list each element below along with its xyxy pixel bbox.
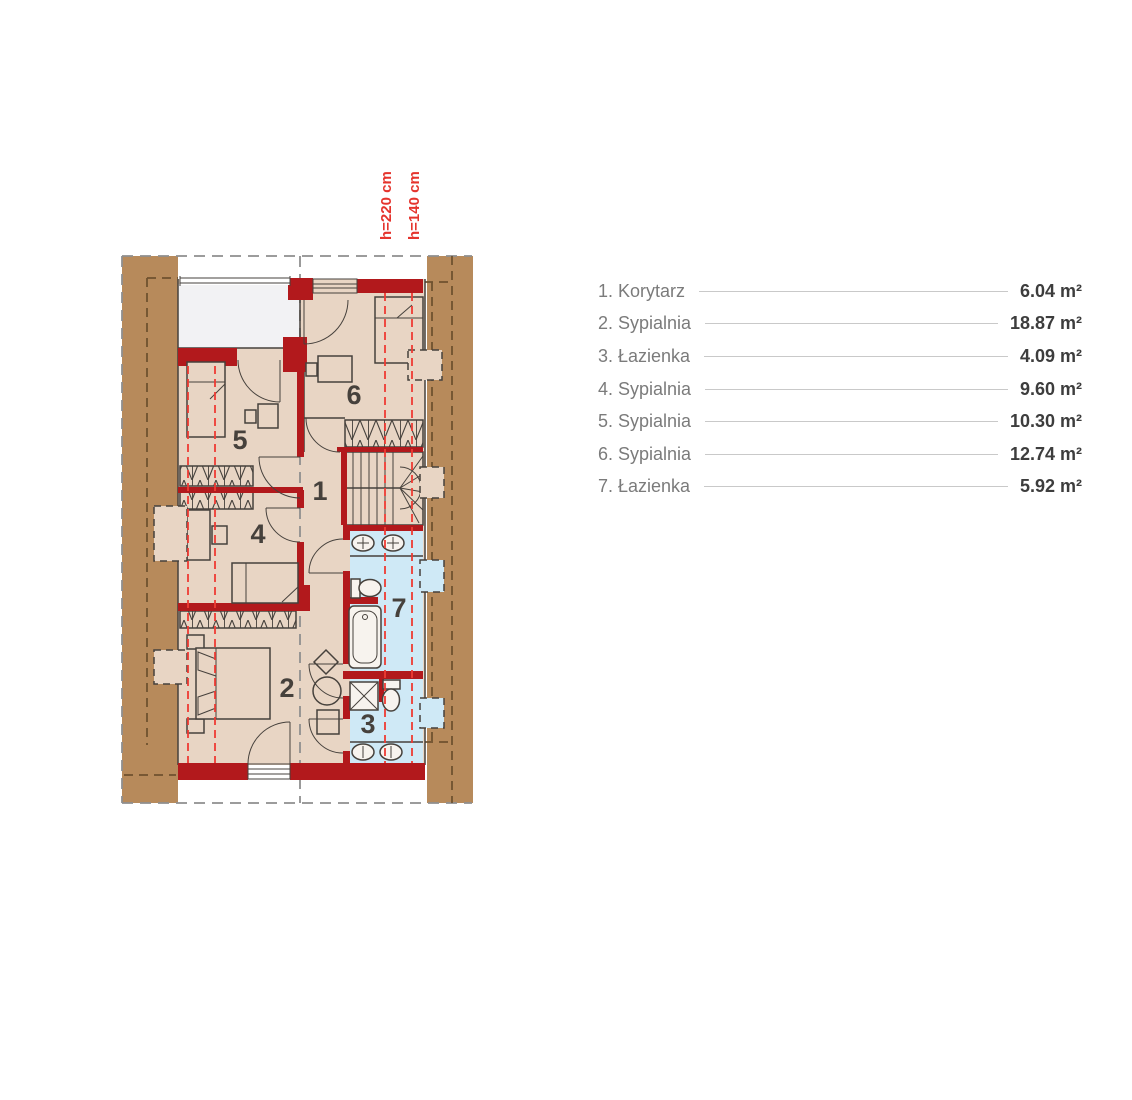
room-label-2: 2 (279, 673, 294, 703)
room-2-table-round (313, 677, 341, 705)
legend-leader-line (705, 323, 998, 324)
dormer-bath-3 (420, 698, 444, 728)
legend-label: 6. Sypialnia (598, 444, 691, 465)
height-label-220: h=220 cm (378, 171, 395, 240)
legend-leader-line (699, 291, 1008, 292)
room-5-chair (245, 410, 256, 423)
wardrobe-room-2 (180, 611, 296, 628)
void-top-window (180, 276, 290, 286)
legend-row-7: 7. Łazienka 5.92 m² (598, 471, 1082, 504)
room-2-balcony-door (248, 764, 290, 779)
room-label-3: 3 (360, 709, 375, 739)
room-legend: 1. Korytarz 6.04 m² 2. Sypialnia 18.87 m… (598, 275, 1082, 503)
room-6-desk (318, 356, 352, 382)
room-5-desk (258, 404, 278, 428)
legend-leader-line (705, 421, 998, 422)
wardrobe-room-4 (180, 492, 253, 509)
legend-area: 5.92 m² (1020, 476, 1082, 497)
legend-label: 3. Łazienka (598, 346, 690, 367)
room-2-pouf (317, 710, 339, 734)
room-label-6: 6 (346, 380, 361, 410)
room-4-desk (187, 510, 210, 560)
height-label-140: h=140 cm (406, 171, 423, 240)
legend-area: 9.60 m² (1020, 379, 1082, 400)
floor-plan-page: 1 2 3 4 5 6 7 h=220 cm h=140 cm 1. Koryt… (0, 0, 1132, 1100)
void-area (178, 284, 300, 348)
height-annotations: h=220 cm h=140 cm (378, 171, 423, 240)
legend-row-6: 6. Sypialnia 12.74 m² (598, 438, 1082, 471)
dormer-room-6 (408, 350, 442, 380)
legend-label: 7. Łazienka (598, 476, 690, 497)
legend-area: 4.09 m² (1020, 346, 1082, 367)
legend-leader-line (705, 454, 998, 455)
room-2-double-bed (196, 648, 270, 719)
legend-leader-line (705, 389, 1008, 390)
legend-row-1: 1. Korytarz 6.04 m² (598, 275, 1082, 308)
room-6-chair (306, 363, 317, 376)
legend-label: 1. Korytarz (598, 281, 685, 302)
room-4-bed (232, 563, 298, 603)
wardrobe-room-5 (180, 466, 253, 486)
dormer-stairs (420, 467, 444, 498)
floor-plan-drawing: 1 2 3 4 5 6 7 h=220 cm h=140 cm (0, 0, 560, 1100)
legend-row-2: 2. Sypialnia 18.87 m² (598, 308, 1082, 341)
legend-label: 2. Sypialnia (598, 313, 691, 334)
room-label-5: 5 (232, 425, 247, 455)
dormer-bath-7 (420, 560, 444, 592)
bath-7-toilet-bowl (359, 580, 381, 597)
legend-row-3: 3. Łazienka 4.09 m² (598, 340, 1082, 373)
legend-row-4: 4. Sypialnia 9.60 m² (598, 373, 1082, 406)
legend-area: 18.87 m² (1010, 313, 1082, 334)
dormer-room-4 (154, 506, 187, 561)
room-label-4: 4 (250, 519, 265, 549)
legend-label: 5. Sypialnia (598, 411, 691, 432)
room-5-bed (187, 362, 225, 437)
dormer-room-2 (154, 650, 187, 684)
legend-label: 4. Sypialnia (598, 379, 691, 400)
legend-row-5: 5. Sypialnia 10.30 m² (598, 405, 1082, 438)
legend-area: 10.30 m² (1010, 411, 1082, 432)
legend-leader-line (704, 356, 1008, 357)
legend-area: 12.74 m² (1010, 444, 1082, 465)
legend-leader-line (704, 486, 1008, 487)
legend-area: 6.04 m² (1020, 281, 1082, 302)
room-2-nightstand-bottom (187, 719, 204, 733)
room-2-nightstand-top (187, 635, 204, 649)
room-label-7: 7 (391, 593, 406, 623)
room-label-1: 1 (312, 476, 327, 506)
